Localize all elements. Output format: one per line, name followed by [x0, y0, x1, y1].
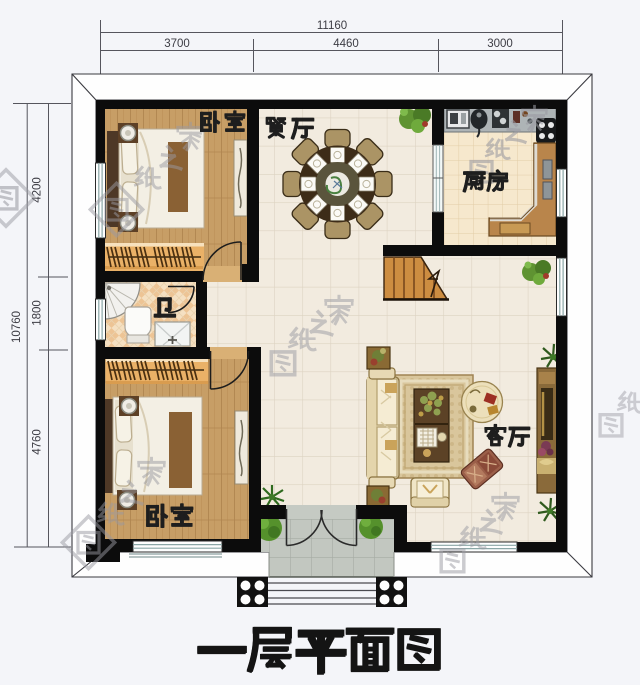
svg-text:10760: 10760: [11, 311, 23, 343]
svg-text:3000: 3000: [487, 38, 513, 50]
svg-text:1800: 1800: [32, 300, 44, 326]
svg-text:4760: 4760: [32, 429, 44, 455]
svg-text:11160: 11160: [317, 20, 347, 32]
svg-text:3700: 3700: [164, 38, 190, 50]
svg-text:4460: 4460: [333, 38, 359, 50]
